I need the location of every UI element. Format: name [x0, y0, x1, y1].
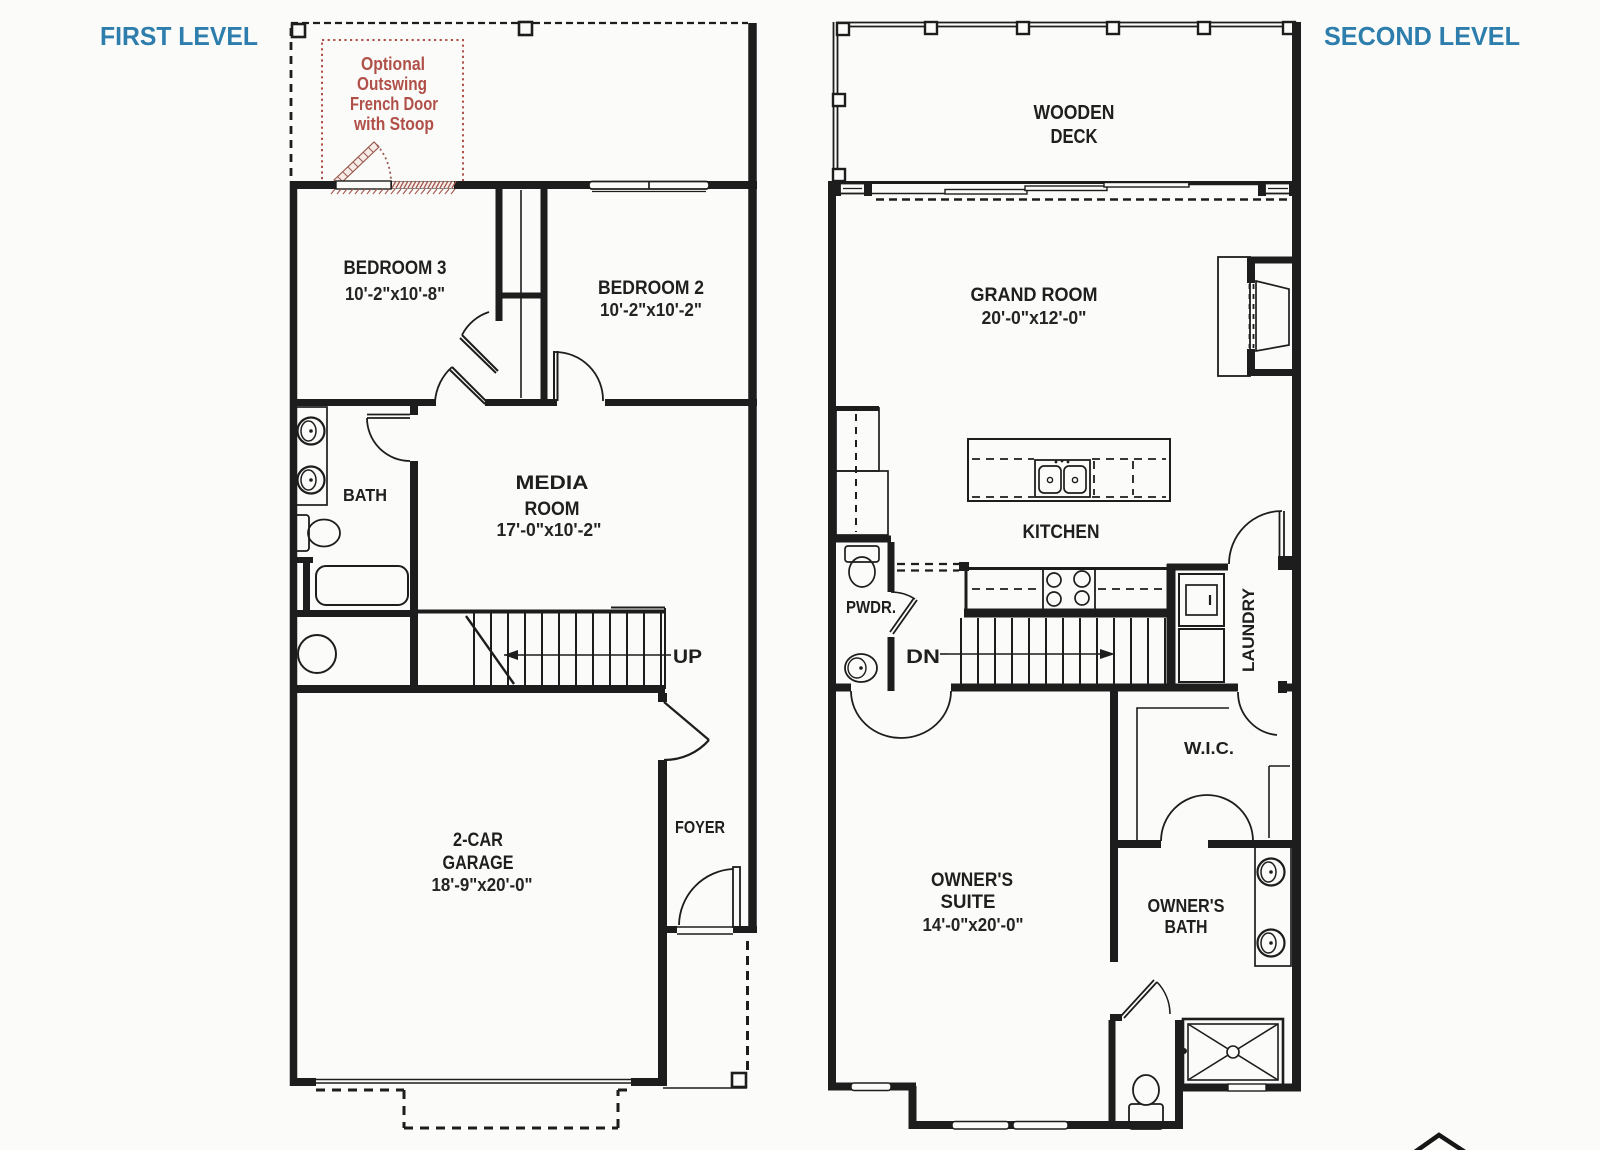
svg-text:OWNER'S: OWNER'S: [1148, 896, 1225, 916]
svg-text:W.I.C.: W.I.C.: [1184, 738, 1234, 758]
svg-text:14'-0"x20'-0": 14'-0"x20'-0": [923, 915, 1024, 935]
svg-text:BATH: BATH: [1165, 917, 1208, 937]
svg-text:10'-2"x10'-8": 10'-2"x10'-8": [345, 284, 445, 304]
svg-text:WOODEN: WOODEN: [1034, 102, 1115, 124]
svg-text:with Stoop: with Stoop: [353, 113, 434, 134]
svg-text:10'-2"x10'-2": 10'-2"x10'-2": [600, 300, 702, 320]
svg-text:GRAND ROOM: GRAND ROOM: [971, 284, 1098, 306]
svg-text:KITCHEN: KITCHEN: [1023, 521, 1100, 543]
svg-text:BATH: BATH: [343, 485, 387, 505]
svg-text:DN: DN: [906, 646, 940, 668]
svg-text:Optional: Optional: [361, 53, 425, 74]
svg-text:2-CAR: 2-CAR: [453, 829, 503, 851]
svg-text:FIRST LEVEL: FIRST LEVEL: [100, 21, 258, 51]
svg-text:20'-0"x12'-0": 20'-0"x12'-0": [982, 308, 1087, 328]
svg-text:SUITE: SUITE: [941, 891, 996, 913]
svg-text:UP: UP: [673, 646, 702, 668]
svg-text:PWDR.: PWDR.: [846, 597, 896, 617]
svg-text:MEDIA: MEDIA: [516, 472, 589, 494]
svg-text:BEDROOM 2: BEDROOM 2: [598, 277, 704, 299]
svg-text:FOYER: FOYER: [675, 817, 725, 837]
svg-text:BEDROOM 3: BEDROOM 3: [344, 257, 447, 279]
svg-text:ROOM: ROOM: [525, 498, 580, 520]
svg-text:SECOND LEVEL: SECOND LEVEL: [1324, 21, 1520, 51]
svg-text:OWNER'S: OWNER'S: [931, 869, 1013, 891]
svg-text:French Door: French Door: [350, 93, 438, 114]
svg-text:DECK: DECK: [1051, 126, 1098, 148]
svg-text:18'-9"x20'-0": 18'-9"x20'-0": [432, 875, 533, 895]
svg-text:GARAGE: GARAGE: [443, 852, 514, 874]
svg-text:17'-0"x10'-2": 17'-0"x10'-2": [497, 520, 602, 540]
svg-text:LAUNDRY: LAUNDRY: [1239, 587, 1258, 672]
svg-text:Outswing: Outswing: [357, 73, 427, 94]
